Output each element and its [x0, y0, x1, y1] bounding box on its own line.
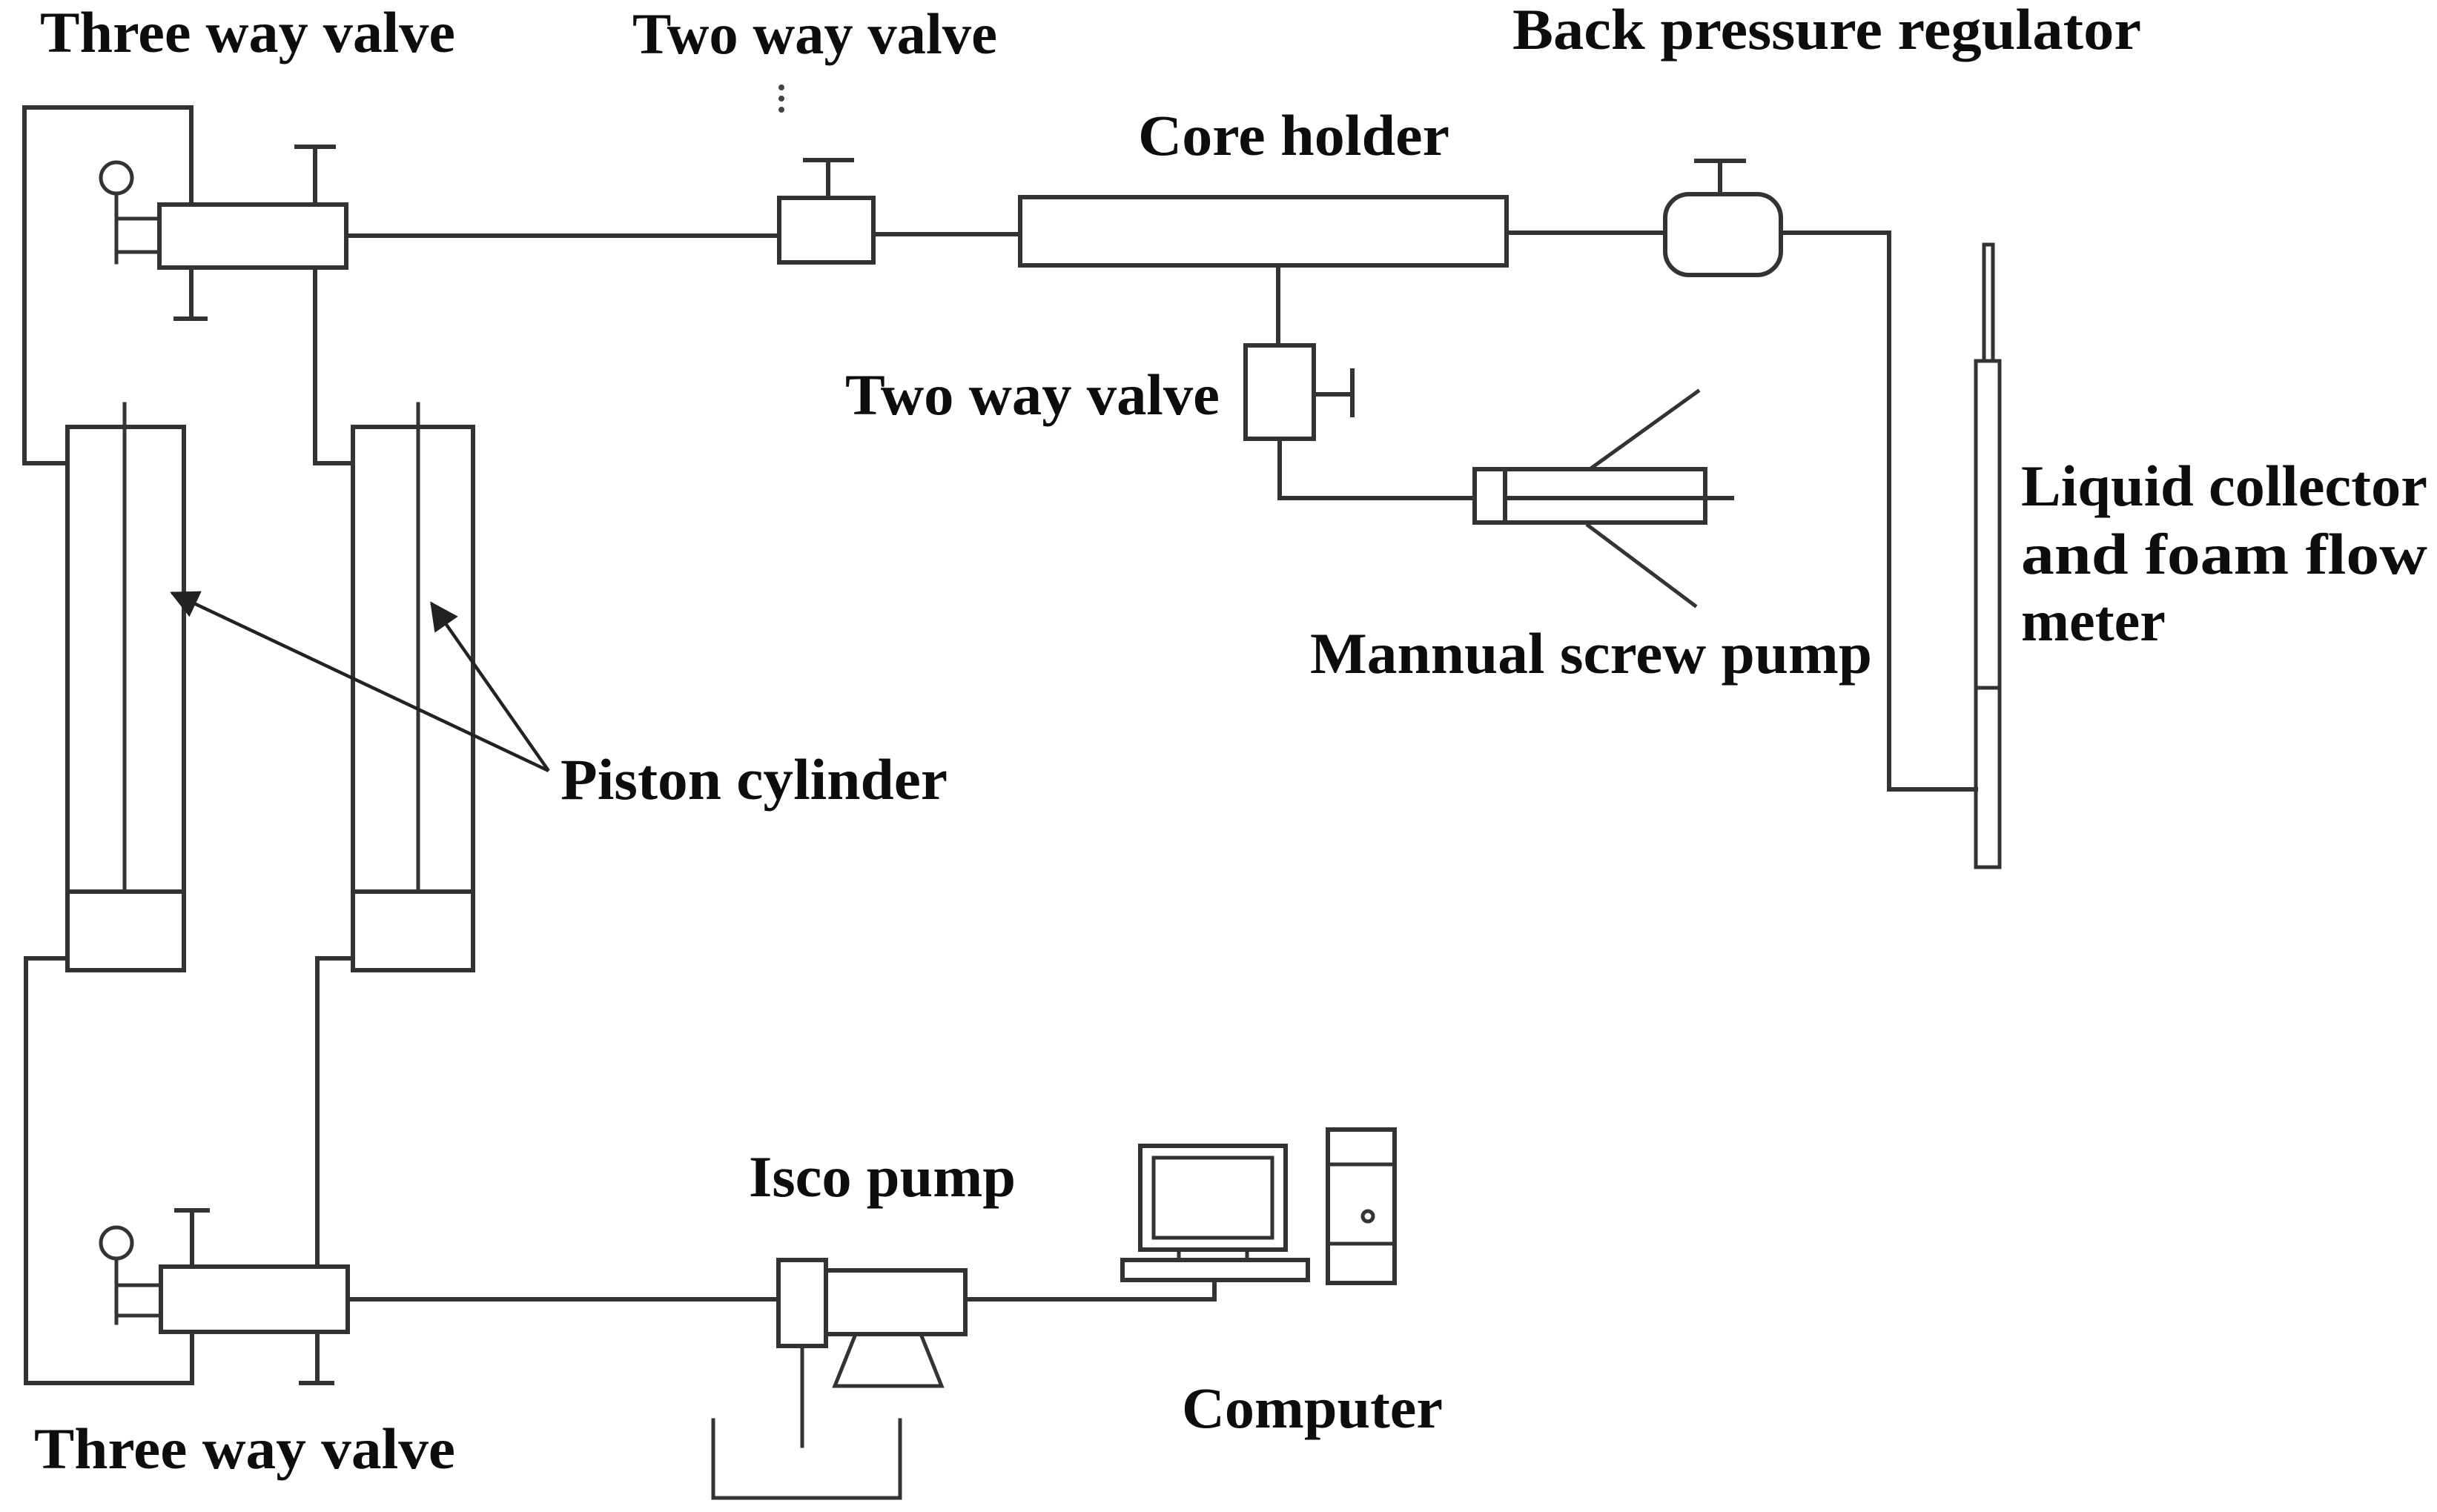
piston-cylinder-right-body	[353, 427, 473, 970]
label-back-pressure-regulator: Back pressure regulator	[1512, 0, 2141, 62]
label-liquid-collector-line3: meter	[2021, 588, 2166, 653]
pressure-gauge-icon	[101, 1227, 132, 1259]
dotted-mark	[778, 96, 784, 102]
collector-main-tube	[1976, 361, 2000, 867]
pipe-isco-to-computer	[965, 1280, 1214, 1299]
dotted-mark	[778, 84, 784, 90]
three-way-valve-bottom-group	[26, 1210, 348, 1383]
label-manual-screw-pump: Mannual screw pump	[1310, 621, 1872, 686]
beaker	[713, 1420, 900, 1498]
label-piston-cylinder: Piston cylinder	[561, 747, 948, 812]
screw-pump-handle-upper	[1592, 391, 1698, 468]
label-liquid-collector-line2: and foam flow	[2021, 522, 2427, 586]
computer-group	[1122, 1130, 1395, 1283]
monitor	[1140, 1146, 1286, 1250]
pipe-bpr-to-collector	[1781, 233, 1976, 789]
pipe-bottom-loop	[26, 1332, 192, 1383]
flow-diagram-svg: Three way valve Two way valve Core holde…	[0, 0, 2437, 1512]
collector-top-tube	[1984, 245, 1993, 361]
computer-tower	[1328, 1130, 1395, 1283]
isco-pump-group	[713, 1260, 965, 1498]
label-computer: Computer	[1182, 1376, 1443, 1440]
piston-cylinder-left	[26, 404, 184, 1383]
label-two-way-valve-top: Two way valve	[632, 1, 997, 66]
label-liquid-collector-line1: Liquid collector	[2021, 454, 2427, 518]
diagram-canvas: Three way valve Two way valve Core holde…	[0, 0, 2437, 1512]
label-core-holder: Core holder	[1138, 103, 1449, 168]
two-way-valve-mid-body	[1246, 345, 1314, 439]
screw-pump-handle-lower	[1588, 525, 1695, 606]
label-isco-pump: Isco pump	[749, 1144, 1016, 1209]
dotted-mark	[778, 107, 784, 113]
core-holder-body	[1020, 197, 1507, 265]
two-way-valve-top-body	[779, 198, 873, 262]
pipe-top-left-loop	[24, 107, 191, 463]
desk-shelf	[1122, 1260, 1308, 1280]
label-three-way-valve-top: Three way valve	[40, 0, 455, 64]
pipe-valve-to-right-cylinder	[315, 268, 353, 463]
isco-pump-body	[826, 1270, 965, 1334]
bpr-body	[1665, 194, 1781, 275]
three-way-valve-bottom-body	[161, 1267, 348, 1332]
label-two-way-valve-mid: Two way valve	[845, 362, 1220, 427]
piston-cylinder-right	[317, 404, 473, 1267]
three-way-valve-top	[24, 107, 353, 463]
back-pressure-regulator-group	[1665, 161, 1781, 275]
two-way-valve-mid-group	[1246, 345, 1475, 498]
isco-pump-head	[778, 1260, 826, 1346]
two-way-valve-top-group	[778, 84, 873, 262]
manual-screw-pump-group	[1475, 391, 1732, 606]
isco-pump-stand	[835, 1334, 942, 1386]
pipe-valve-to-screw-pump	[1280, 439, 1475, 498]
liquid-collector-group	[1976, 245, 2000, 867]
pressure-gauge-icon	[101, 162, 132, 193]
pipe-left-cylinder-down	[26, 958, 67, 1383]
pipe-right-cylinder-down	[317, 958, 353, 1267]
label-three-way-valve-bottom: Three way valve	[34, 1416, 455, 1481]
three-way-valve-top-body	[159, 205, 346, 268]
